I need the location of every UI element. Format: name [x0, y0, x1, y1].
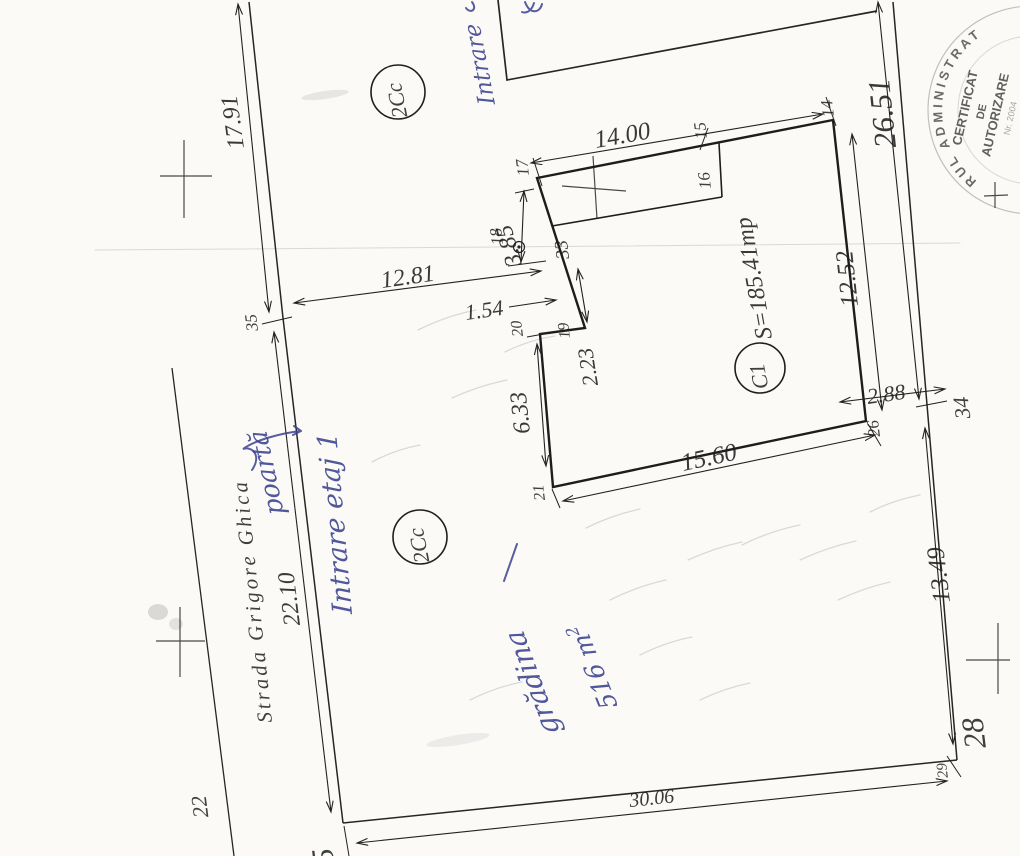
dim-step: 1.54: [463, 295, 505, 325]
dim-left-wall: 6.33: [506, 391, 536, 435]
grid-cross-icon: [160, 140, 212, 218]
extension-ticks: [262, 97, 961, 856]
handwritten-annotations: Intrare Intrare etaj 1 poartă grădina 51…: [243, 2, 624, 738]
point-label-17: 17: [512, 157, 533, 178]
point-label-5: 5: [304, 846, 341, 856]
garden-underline-stroke: [504, 544, 517, 581]
dim-street-lower: 22.10: [274, 571, 306, 628]
scan-line-artifact: [95, 243, 960, 250]
point-label-21: 21: [530, 484, 549, 502]
point-label-29: 29: [934, 762, 952, 779]
zone-circles: [371, 65, 785, 564]
smudge: [301, 88, 350, 103]
point-label-33: 33: [551, 239, 574, 261]
dim-house-to-boundary: 2.88: [865, 379, 907, 409]
dim-bottom: 30.06: [627, 785, 675, 812]
dim-house-top: 14.00: [592, 117, 653, 153]
point-label-20: 20: [508, 320, 527, 338]
point-label-22: 22: [186, 794, 213, 819]
point-label-28: 28: [954, 715, 993, 751]
point-label-14: 14: [817, 99, 838, 119]
cadastral-plan-svg: 2Cc 2Cc C1 S=185.41mp 17.91 22.10 12.81 …: [0, 0, 1020, 856]
dim-street-to-house: 12.81: [379, 261, 436, 294]
dim-right-wall: 12.52: [831, 249, 864, 308]
handwriting-top-entrance: Intrare: [459, 23, 501, 107]
dim-line-street-lower: [274, 332, 331, 812]
zone-label-lower: 2Cc: [403, 525, 434, 565]
point-label-26: 26: [863, 419, 884, 439]
authorization-stamp: RUL ADMINISTRAT CERTIFICAT DE AUTORIZARE…: [928, 6, 1020, 214]
dim-recess: 2.23: [572, 346, 603, 388]
dim-bottom-wall: 15.60: [679, 439, 740, 477]
handwriting-garden: grădina: [497, 627, 567, 738]
handwriting-garden-area: 516 m2: [561, 621, 623, 712]
point-label-16: 16: [694, 171, 715, 191]
dim-street-upper: 17.91: [217, 94, 250, 151]
cutoff-handwriting-stroke: [522, 2, 542, 13]
point-label-34: 34: [948, 395, 976, 421]
dim-line-step: [509, 300, 556, 307]
pencil-hatching: [372, 310, 920, 700]
dim-right-upper: 26.51: [861, 77, 903, 150]
point-labels: 17 15 14 16 18 33 19 20 21 26 34 35 22 2…: [186, 99, 993, 856]
zone-label-upper: 2Cc: [381, 80, 412, 120]
building-area-label: S=185.41mp: [731, 215, 778, 341]
neighbor-building-outline: [498, 0, 877, 80]
dim-line-house-top: [531, 114, 823, 163]
point-label-18: 18: [486, 227, 507, 247]
cutoff-handwriting-stroke: [466, 2, 474, 11]
point-label-35: 35: [241, 313, 262, 333]
building-cross-symbol: [562, 156, 626, 219]
street-outer-edge-line: [172, 368, 234, 856]
smudge: [169, 618, 183, 630]
smudge: [148, 604, 168, 620]
smudge: [426, 730, 491, 750]
point-label-19: 19: [555, 322, 574, 340]
point-label-15: 15: [690, 121, 711, 140]
dim-right-lower: 13.49: [922, 545, 956, 605]
grid-cross-icon: [966, 623, 1010, 694]
scanned-cadastral-plan: 2Cc 2Cc C1 S=185.41mp 17.91 22.10 12.81 …: [0, 0, 1020, 856]
building-id-label: C1: [744, 361, 773, 391]
handwriting-floor-entrance: Intrare etaj 1: [312, 432, 359, 615]
